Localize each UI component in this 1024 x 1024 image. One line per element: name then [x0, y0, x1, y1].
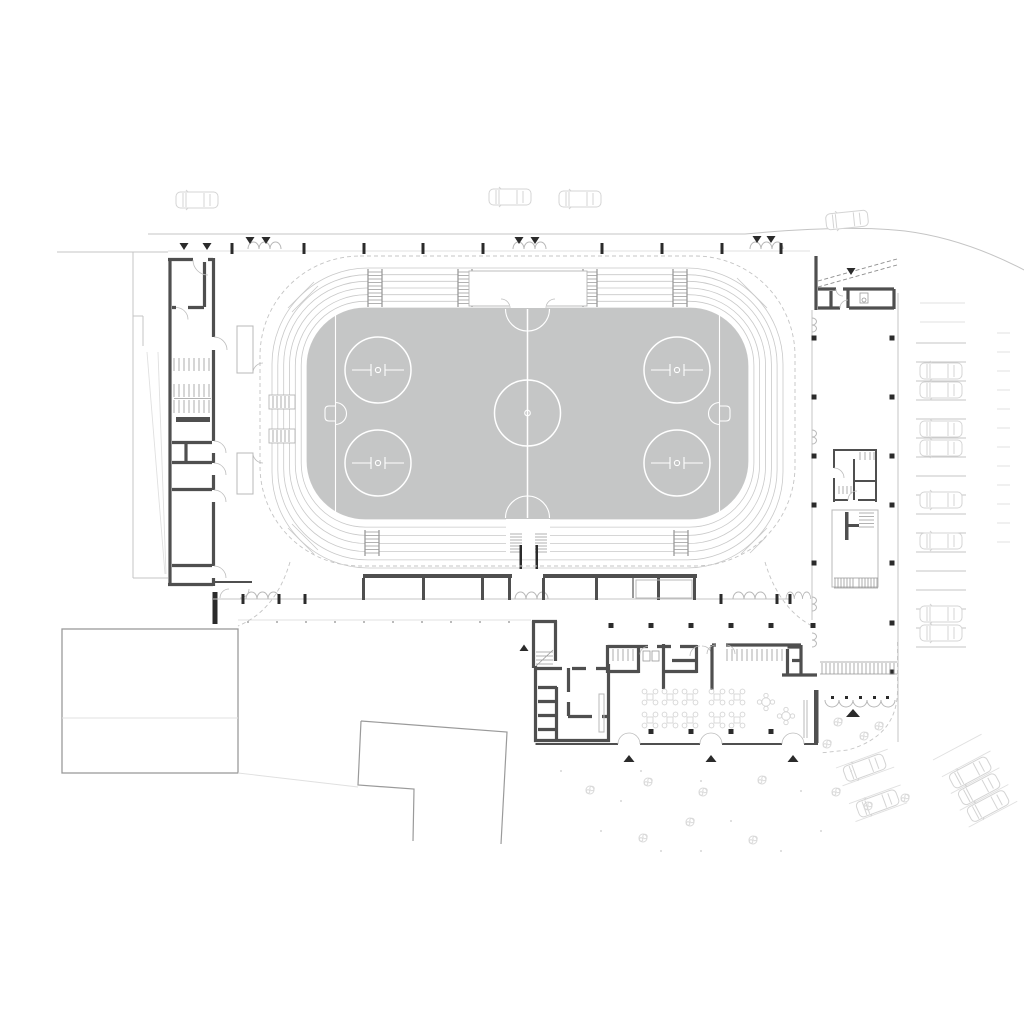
canopy-shelter-east [542, 574, 697, 600]
west-vomitories [269, 395, 295, 443]
existing-ramp-structure [57, 252, 168, 578]
trees [586, 718, 909, 844]
entry-arrow-down [180, 243, 212, 250]
gate-arrows-north [246, 236, 776, 244]
east-colonnade [812, 293, 899, 753]
south-fence [213, 592, 811, 604]
entry-arrow-down [847, 268, 856, 275]
picket-fence [820, 662, 897, 674]
colonnade-columns [812, 336, 895, 675]
canopy-shelter-west [362, 574, 512, 600]
north-fence [231, 242, 784, 254]
existing-building-south [358, 721, 507, 844]
foyer-tables [642, 689, 795, 728]
counter [804, 700, 807, 738]
east-wall [814, 690, 819, 743]
turnstile-gate [750, 242, 783, 249]
east-service-pavilion [832, 450, 878, 588]
vestibule-stair [536, 650, 553, 666]
bench [599, 694, 604, 732]
west-booths [237, 326, 263, 494]
existing-building-southwest [62, 629, 358, 787]
south-entrance-hall [520, 621, 819, 762]
stair-treads [859, 513, 874, 527]
coat-rack [727, 649, 782, 661]
stair-landing [176, 417, 210, 422]
floor-plan-page: Architectural ground-floor site plan of … [0, 0, 1024, 1024]
north-opening [509, 293, 547, 309]
fence-posts [231, 243, 783, 254]
north-boundary-line [148, 228, 1024, 271]
staircase [174, 358, 211, 413]
ice-hockey-rink [307, 308, 748, 519]
paving-dots [560, 770, 852, 852]
paving-marker-row [247, 621, 510, 623]
south-east-parking [836, 734, 1018, 827]
corner-post [213, 592, 218, 624]
entry-arrow-up [846, 709, 860, 717]
entrance-kiosk [816, 256, 897, 310]
bike-shelter [832, 510, 878, 587]
east-plaza [820, 662, 897, 717]
entry-arrow-up [624, 755, 799, 762]
site-plan-drawing: Architectural ground-floor site plan of … [0, 0, 1024, 1024]
street-cars [176, 187, 869, 232]
west-locker-building [168, 243, 263, 624]
entry-arrow-up [520, 645, 529, 652]
coat-rack [613, 649, 633, 661]
hedge-row [825, 696, 895, 707]
east-parking [916, 303, 1010, 647]
ramp-dashed [818, 259, 897, 287]
south-vomitory [506, 519, 550, 569]
